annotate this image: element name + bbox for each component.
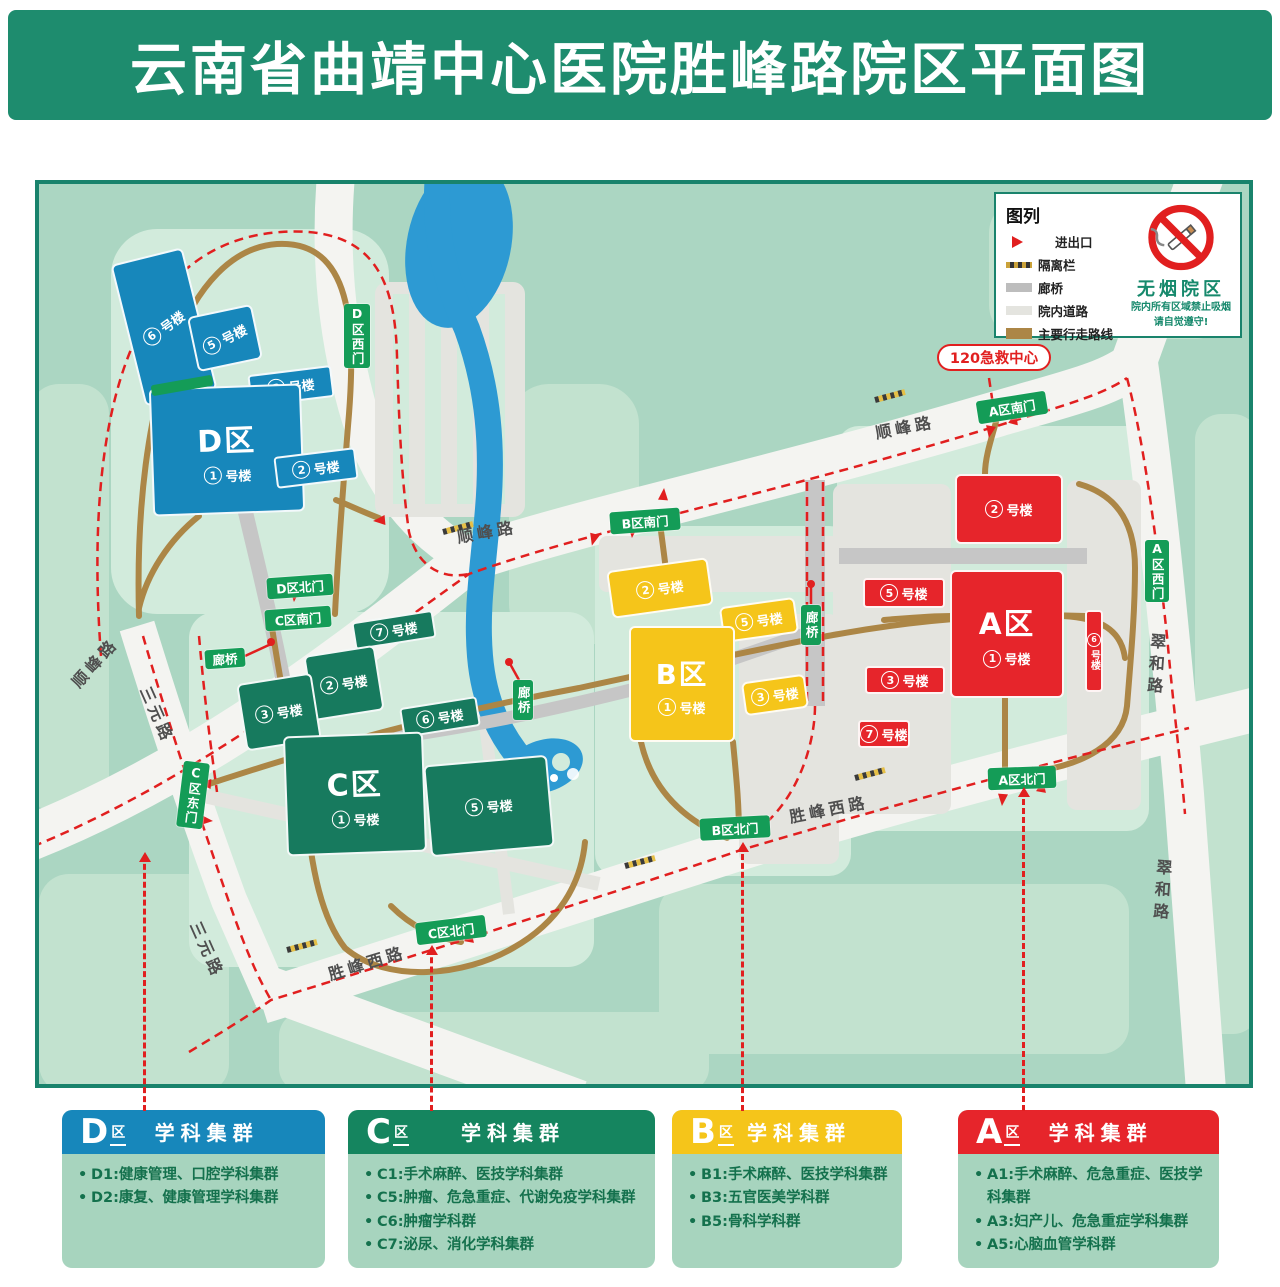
bridge-icon (1006, 283, 1032, 292)
road-label-shunfeng-right: 顺峰路 (873, 409, 936, 444)
discipline-cluster-item: D1:健康管理、口腔学科集群 (78, 1164, 311, 1187)
legend-item-label: 廊桥 (1038, 278, 1063, 297)
campus-map: 6号楼5号楼3号楼D区1号楼2号楼7号楼2号楼3号楼6号楼C区1号楼5号楼2号楼… (35, 180, 1253, 1088)
panel-zone-suffix: 区 (1004, 1122, 1020, 1146)
legend-item-roads: 院内道路 (1006, 301, 1128, 320)
road-label-cuihe-bottom: 翠和路 (1146, 858, 1175, 926)
legend-item-label: 进出口 (1055, 232, 1093, 251)
page-title: 云南省曲靖中心医院胜峰路院区平面图 (130, 24, 1150, 106)
panel-zone-letter: D (80, 1117, 108, 1148)
map-legend: 图列 进出口隔离栏廊桥院内道路主要行走路线 无烟院区 院内所有区域禁止吸烟 请自… (994, 192, 1242, 338)
discipline-cluster-item: D2:康复、健康管理学科集群 (78, 1187, 311, 1210)
discipline-cluster-item: C5:肿瘤、危急重症、代谢免疫学科集群 (364, 1187, 641, 1210)
panel-c: C区学科集群C1:手术麻醉、医技学科集群C5:肿瘤、危急重症、代谢免疫学科集群C… (348, 1110, 655, 1268)
panel-b-header: B区学科集群 (672, 1110, 902, 1154)
panel-zone-letter: B (690, 1117, 716, 1148)
no-smoking-sign: 无烟院区 院内所有区域禁止吸烟 请自觉遵守! (1128, 202, 1234, 330)
road-label-shengfengxi-left: 胜峰西路 (325, 939, 409, 985)
road-label-sanyuan-bottom: 三元路 (185, 917, 231, 982)
legend-item-label: 主要行走路线 (1038, 324, 1113, 343)
road-label-shunfeng-mid: 顺峰路 (455, 514, 518, 548)
connector-arrow-icon (426, 945, 438, 955)
legend-item-entrance: 进出口 (1006, 232, 1128, 251)
panel-zone-suffix: 区 (393, 1122, 409, 1146)
panel-zone-suffix: 区 (110, 1122, 126, 1146)
panel-title: 学科集群 (1049, 1117, 1153, 1146)
panel-zone-letter: A (976, 1117, 1002, 1148)
no-smoking-line1: 院内所有区域禁止吸烟 (1131, 301, 1231, 316)
panel-d-header: D区学科集群 (62, 1110, 325, 1154)
panel-zone-suffix: 区 (718, 1122, 734, 1146)
connector-arrow-icon (1018, 787, 1030, 797)
legend-items: 图列 进出口隔离栏廊桥院内道路主要行走路线 (1006, 202, 1128, 330)
road-label-cuihe-top: 翠和路 (1140, 632, 1169, 700)
discipline-cluster-item: A1:手术麻醉、危急重症、医技学科集群 (974, 1164, 1205, 1211)
panel-title: 学科集群 (747, 1117, 851, 1146)
discipline-cluster-item: C6:肿瘤学科群 (364, 1211, 641, 1234)
road-label-shengfengxi-right: 胜峰西路 (787, 789, 870, 828)
connector-arrow-icon (737, 842, 749, 852)
panel-d: D区学科集群D1:健康管理、口腔学科集群D2:康复、健康管理学科集群 (62, 1110, 325, 1268)
legend-item-route: 主要行走路线 (1006, 324, 1128, 343)
entrance-icon (1012, 236, 1049, 248)
panel-d-body: D1:健康管理、口腔学科集群D2:康复、健康管理学科集群 (62, 1154, 325, 1211)
legend-title: 图列 (1006, 202, 1128, 227)
panel-title: 学科集群 (461, 1117, 565, 1146)
panel-b: B区学科集群B1:手术麻醉、医技学科集群B3:五官医美学科群B5:骨科学科群 (672, 1110, 902, 1268)
panel-zone-letter: C (366, 1117, 391, 1148)
connector-arrow-icon (139, 852, 151, 862)
page: 云南省曲靖中心医院胜峰路院区平面图 (0, 0, 1280, 1287)
panel-b-body: B1:手术麻醉、医技学科集群B3:五官医美学科群B5:骨科学科群 (672, 1154, 902, 1234)
legend-item-barrier: 隔离栏 (1006, 255, 1128, 274)
no-smoking-title: 无烟院区 (1137, 275, 1225, 301)
panel-a: A区学科集群A1:手术麻醉、危急重症、医技学科集群A3:妇产儿、危急重症学科集群… (958, 1110, 1219, 1268)
page-title-banner: 云南省曲靖中心医院胜峰路院区平面图 (8, 10, 1272, 120)
discipline-cluster-item: B5:骨科学科群 (688, 1211, 888, 1234)
barrier-icon (1006, 262, 1032, 268)
connector-a (1022, 790, 1025, 1111)
legend-item-label: 院内道路 (1038, 301, 1088, 320)
connector-b (741, 845, 744, 1111)
panel-a-body: A1:手术麻醉、危急重症、医技学科集群A3:妇产儿、危急重症学科集群A5:心脑血… (958, 1154, 1219, 1258)
route-icon (1006, 328, 1032, 339)
road-label-shunfeng-left: 顺峰路 (65, 631, 123, 692)
discipline-cluster-item: C7:泌尿、消化学科集群 (364, 1234, 641, 1257)
legend-item-bridge: 廊桥 (1006, 278, 1128, 297)
panel-c-header: C区学科集群 (348, 1110, 655, 1154)
discipline-cluster-item: A5:心脑血管学科群 (974, 1234, 1205, 1257)
discipline-cluster-item: A3:妇产儿、危急重症学科集群 (974, 1211, 1205, 1234)
legend-item-label: 隔离栏 (1038, 255, 1076, 274)
connector-c (430, 948, 433, 1111)
discipline-cluster-item: B3:五官医美学科群 (688, 1187, 888, 1210)
road-label-sanyuan-top: 三元路 (135, 682, 181, 747)
connector-d (143, 855, 146, 1111)
roads-icon (1006, 306, 1032, 315)
discipline-cluster-item: B1:手术麻醉、医技学科集群 (688, 1164, 888, 1187)
discipline-cluster-item: C1:手术麻醉、医技学科集群 (364, 1164, 641, 1187)
panel-title: 学科集群 (155, 1117, 259, 1146)
panel-c-body: C1:手术麻醉、医技学科集群C5:肿瘤、危急重症、代谢免疫学科集群C6:肿瘤学科… (348, 1154, 655, 1258)
emergency-120-label: 120急救中心 (937, 344, 1051, 371)
no-smoking-icon (1144, 202, 1218, 273)
panel-a-header: A区学科集群 (958, 1110, 1219, 1154)
no-smoking-line2: 请自觉遵守! (1154, 316, 1209, 331)
